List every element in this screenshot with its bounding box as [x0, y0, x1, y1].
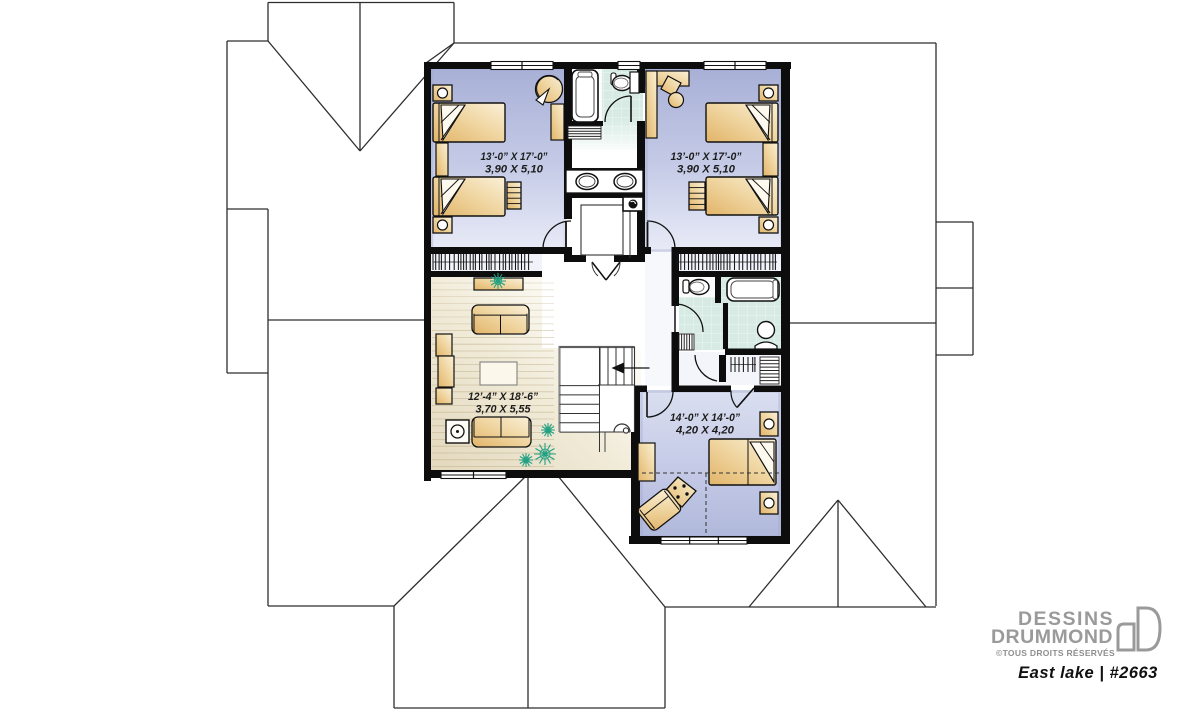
svg-text:3,70 X 5,55: 3,70 X 5,55: [476, 404, 532, 416]
svg-text:4,20 X 4,20: 4,20 X 4,20: [675, 425, 735, 437]
svg-text:13’-0” X 17’-0”: 13’-0” X 17’-0”: [481, 151, 548, 163]
svg-text:12’-4” X 18’-6”: 12’-4” X 18’-6”: [468, 391, 538, 403]
svg-text:13’-0” X 17’-0”: 13’-0” X 17’-0”: [671, 151, 742, 163]
svg-text:East lake | #2663: East lake | #2663: [1018, 664, 1158, 682]
svg-text:3,90 X 5,10: 3,90 X 5,10: [485, 164, 544, 176]
svg-text:3,90 X 5,10: 3,90 X 5,10: [677, 164, 736, 176]
svg-text:DRUMMOND: DRUMMOND: [991, 626, 1113, 648]
svg-text:©TOUS DROITS RÉSERVÉS: ©TOUS DROITS RÉSERVÉS: [996, 648, 1115, 658]
svg-text:14’-0” X 14’-0”: 14’-0” X 14’-0”: [670, 412, 740, 424]
